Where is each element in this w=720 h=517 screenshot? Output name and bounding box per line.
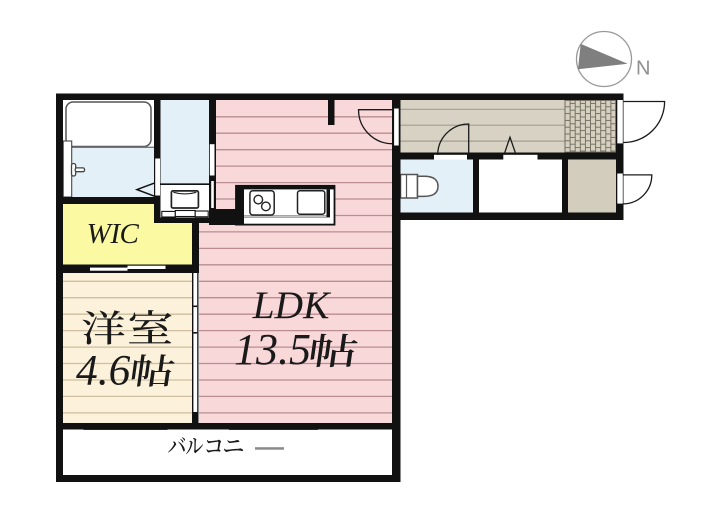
svg-text:WIC: WIC (87, 218, 140, 250)
svg-text:N: N (636, 58, 650, 80)
svg-text:4.6: 4.6 (76, 347, 131, 395)
svg-text:LDK: LDK (252, 283, 332, 327)
svg-text:13.5: 13.5 (234, 325, 311, 374)
